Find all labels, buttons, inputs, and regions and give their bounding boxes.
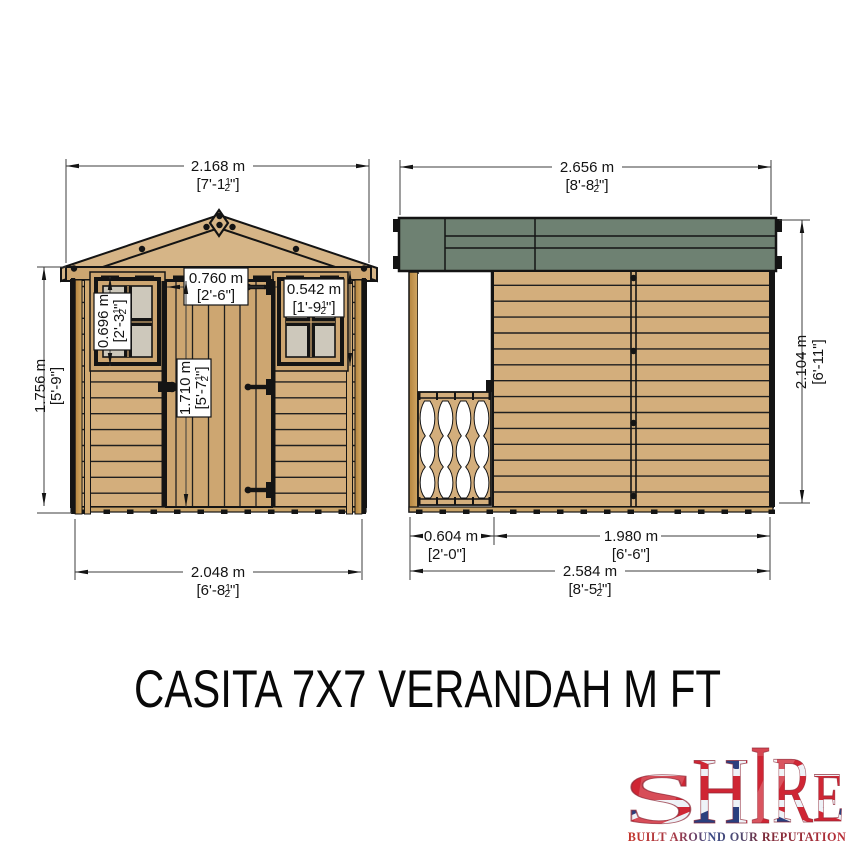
svg-text:E: E bbox=[813, 759, 844, 837]
svg-text:R: R bbox=[772, 739, 814, 843]
svg-text:[6'-6"]: [6'-6"] bbox=[612, 546, 650, 563]
svg-text:0.696 m: 0.696 m bbox=[95, 294, 112, 348]
svg-text:H: H bbox=[692, 739, 750, 844]
svg-text:BUILT AROUND OUR REPUTATION: BUILT AROUND OUR REPUTATION bbox=[628, 830, 847, 844]
svg-text:1.980 m: 1.980 m bbox=[604, 528, 658, 545]
svg-text:[7'-112"]: [7'-112"] bbox=[196, 176, 239, 194]
svg-text:2.104 m: 2.104 m bbox=[793, 335, 810, 389]
svg-text:1.710 m: 1.710 m bbox=[177, 361, 194, 415]
svg-text:[1'-912"]: [1'-912"] bbox=[292, 299, 335, 317]
svg-text:0.542 m: 0.542 m bbox=[287, 281, 341, 298]
svg-text:2.168 m: 2.168 m bbox=[191, 158, 245, 175]
svg-text:[2'-6"]: [2'-6"] bbox=[197, 287, 235, 304]
svg-text:2.048 m: 2.048 m bbox=[191, 564, 245, 581]
svg-text:[6'-11"]: [6'-11"] bbox=[810, 339, 827, 384]
svg-text:2.656 m: 2.656 m bbox=[560, 159, 614, 176]
svg-text:[5'-712"]: [5'-712"] bbox=[193, 366, 211, 409]
svg-text:CASITA 7X7 VERANDAH M FT: CASITA 7X7 VERANDAH M FT bbox=[134, 660, 721, 719]
svg-text:1.756 m: 1.756 m bbox=[32, 359, 49, 413]
svg-text:[8'-512"]: [8'-512"] bbox=[568, 581, 611, 599]
svg-text:[5'-9"]: [5'-9"] bbox=[48, 367, 65, 405]
svg-text:[8'-812"]: [8'-812"] bbox=[565, 177, 608, 195]
svg-text:S: S bbox=[622, 758, 699, 839]
svg-text:[6'-812"]: [6'-812"] bbox=[196, 582, 239, 600]
svg-text:0.604 m: 0.604 m bbox=[424, 528, 478, 545]
svg-text:[2'-0"]: [2'-0"] bbox=[428, 546, 466, 563]
svg-text:[2'-312"]: [2'-312"] bbox=[111, 299, 129, 342]
svg-text:0.760 m: 0.760 m bbox=[189, 270, 243, 287]
svg-text:2.584 m: 2.584 m bbox=[563, 563, 617, 580]
